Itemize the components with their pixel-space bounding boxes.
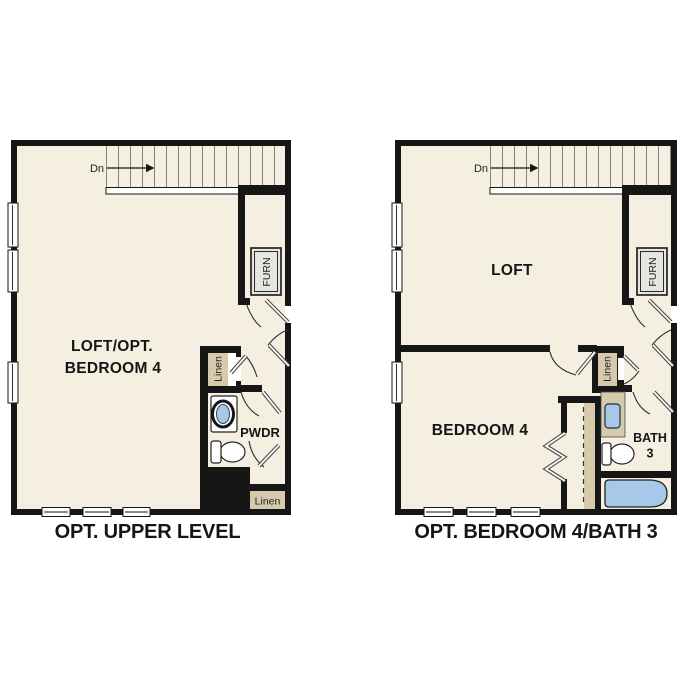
room-label-line2: BEDROOM 4 [65, 360, 162, 377]
window [424, 508, 453, 517]
toilet-icon [602, 443, 634, 465]
linen-closet-label: Linen [213, 356, 225, 382]
wall-top [11, 140, 291, 146]
wall-tub-alcove [601, 471, 671, 478]
wall-powder-left [200, 346, 208, 475]
wall-closet-top [558, 396, 601, 403]
wall-closet-right [595, 403, 601, 509]
wall-top [395, 140, 677, 146]
room-label-line1: LOFT/OPT. [71, 338, 153, 355]
window [8, 362, 18, 403]
window [511, 508, 540, 517]
wall-powder-top [208, 385, 262, 392]
wall-closet-stub-lower [561, 479, 567, 510]
bedroom-label: BEDROOM 4 [432, 422, 529, 439]
wall-left [11, 140, 17, 515]
floorplan-canvas: Dn LOFT/OPT. BEDROOM 4 FURN Linen PWDR L… [0, 0, 687, 687]
window [123, 508, 150, 517]
window [392, 362, 402, 403]
bathtub-icon [605, 480, 667, 507]
wall-furnace-stub [622, 298, 634, 305]
stairs-down-label: Dn [474, 163, 488, 175]
wall-furnace-closet [622, 185, 629, 305]
window [83, 508, 111, 517]
wall-mass-bottom [200, 467, 250, 515]
bath-label-line2: 3 [647, 447, 654, 461]
plan-caption: OPT. UPPER LEVEL [55, 521, 241, 543]
furnace-label: FURN [261, 257, 273, 286]
sink-icon [211, 396, 237, 432]
stairs-treads [106, 146, 285, 187]
stairs-rail [490, 188, 624, 195]
wall-right [671, 140, 677, 515]
window [392, 250, 402, 292]
wall-loft-bedroom [401, 345, 550, 352]
furnace-label: FURN [647, 257, 659, 286]
wall-bath-stub [618, 385, 632, 392]
window [467, 508, 496, 517]
wall-left [395, 140, 401, 515]
linen-closet-label: Linen [602, 356, 614, 382]
floorplan-opt-upper-level: Dn LOFT/OPT. BEDROOM 4 FURN Linen PWDR L… [8, 140, 291, 543]
floorplan-opt-bedroom4-bath3: Dn LOFT BEDROOM 4 FURN Linen BATH 3 OPT.… [392, 140, 677, 543]
stairs-down-label: Dn [90, 163, 104, 175]
bath-label-line1: BATH [633, 431, 667, 445]
window [8, 250, 18, 292]
linen-lower-label: Linen [255, 496, 281, 508]
wall-linen-lower-top [250, 484, 285, 491]
window [392, 203, 402, 247]
closet-shelf [584, 403, 595, 509]
wall-stair-landing [622, 185, 671, 195]
linen-closet-opening [618, 358, 624, 380]
plan-caption: OPT. BEDROOM 4/BATH 3 [414, 521, 657, 543]
stairs-rail [106, 188, 240, 195]
wall-closet-stub-upper [561, 403, 567, 433]
vanity-sink-icon [605, 404, 620, 428]
wall-furnace-closet [238, 185, 245, 305]
toilet-icon [211, 441, 245, 463]
wall-furnace-stub [238, 298, 250, 305]
window [42, 508, 70, 517]
window [8, 203, 18, 247]
powder-room-label: PWDR [240, 425, 280, 440]
wall-right [285, 140, 291, 515]
stairs-treads [490, 146, 671, 187]
loft-label: LOFT [491, 262, 533, 279]
wall-stair-landing [238, 185, 285, 195]
floorplan-sheet: Dn LOFT/OPT. BEDROOM 4 FURN Linen PWDR L… [0, 0, 687, 687]
